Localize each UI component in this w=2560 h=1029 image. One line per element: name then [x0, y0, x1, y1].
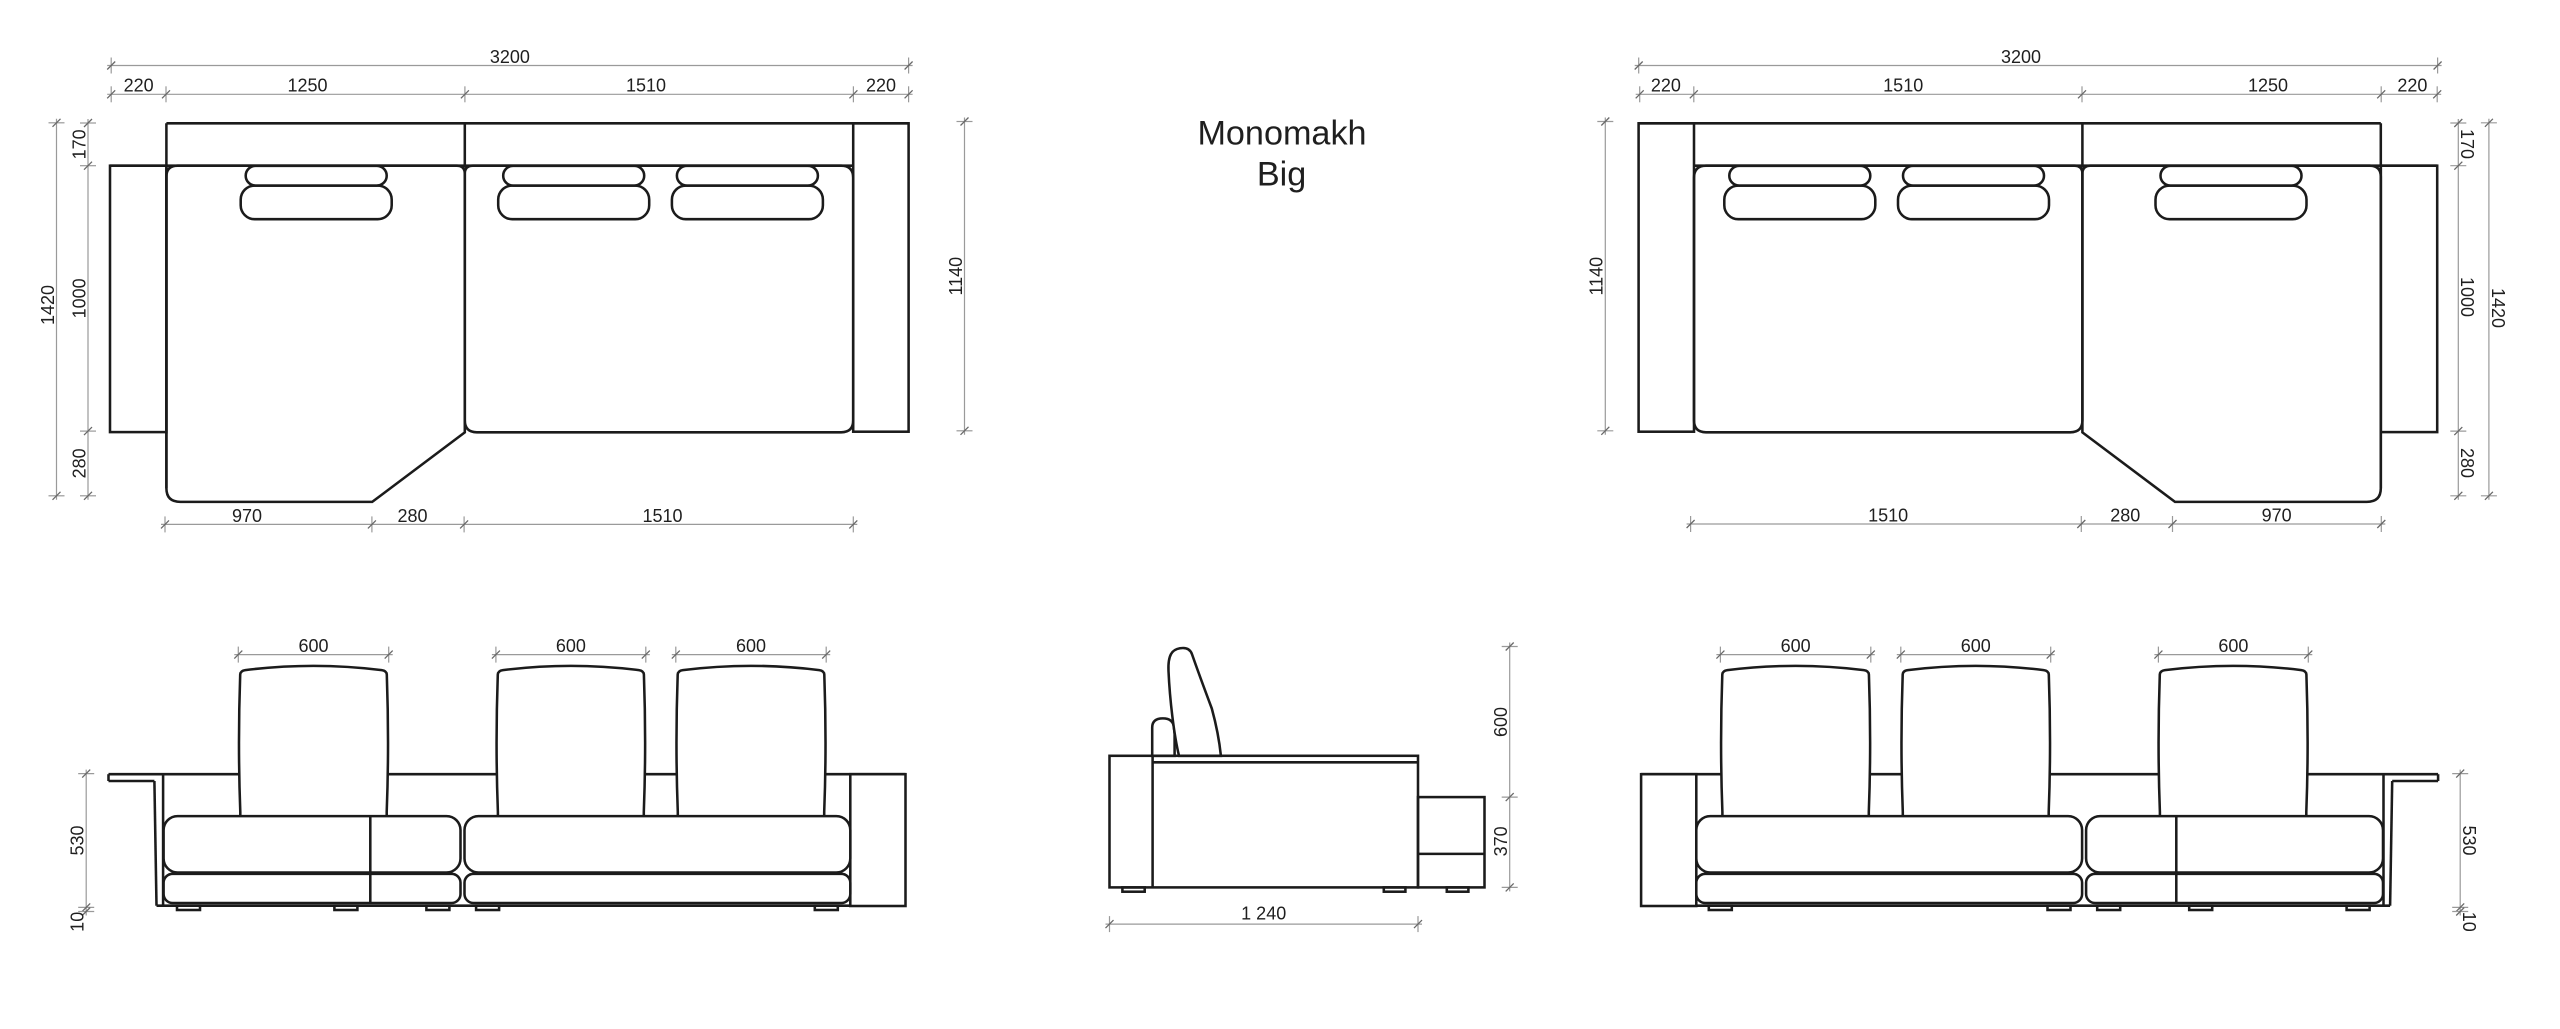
svg-text:600: 600: [2218, 636, 2248, 656]
svg-text:Monomakh: Monomakh: [1197, 114, 1366, 152]
svg-text:1420: 1420: [2488, 288, 2508, 328]
svg-text:970: 970: [232, 506, 262, 526]
svg-text:1420: 1420: [38, 285, 58, 325]
svg-text:1000: 1000: [2457, 277, 2477, 317]
svg-text:1 240: 1 240: [1241, 904, 1286, 924]
svg-text:600: 600: [1491, 707, 1511, 737]
svg-text:600: 600: [1781, 636, 1811, 656]
svg-text:3200: 3200: [2001, 47, 2041, 67]
svg-text:370: 370: [1491, 826, 1511, 856]
svg-text:1140: 1140: [1587, 257, 1607, 296]
svg-text:600: 600: [1961, 636, 1991, 656]
svg-text:170: 170: [2457, 129, 2477, 159]
svg-text:1510: 1510: [1868, 505, 1908, 525]
svg-text:600: 600: [298, 636, 328, 656]
svg-text:600: 600: [556, 636, 586, 656]
svg-text:600: 600: [736, 636, 766, 656]
svg-text:170: 170: [69, 129, 89, 159]
svg-text:1250: 1250: [287, 76, 327, 96]
svg-text:220: 220: [2397, 76, 2427, 96]
svg-text:1000: 1000: [69, 278, 89, 318]
svg-text:530: 530: [2459, 825, 2479, 855]
svg-text:220: 220: [866, 76, 896, 96]
svg-text:1250: 1250: [2248, 76, 2288, 96]
svg-text:220: 220: [124, 76, 154, 96]
svg-text:280: 280: [2110, 505, 2140, 525]
svg-text:220: 220: [1651, 76, 1681, 96]
svg-text:280: 280: [2457, 448, 2477, 478]
svg-text:Big: Big: [1257, 155, 1306, 193]
svg-text:530: 530: [68, 825, 88, 855]
svg-text:10: 10: [68, 912, 88, 932]
svg-text:10: 10: [2459, 912, 2479, 932]
svg-text:1510: 1510: [1883, 76, 1923, 96]
svg-text:1510: 1510: [642, 506, 682, 526]
svg-text:970: 970: [2262, 505, 2292, 525]
svg-text:1510: 1510: [626, 76, 666, 96]
svg-text:280: 280: [69, 448, 89, 478]
svg-text:280: 280: [397, 506, 427, 526]
svg-text:3200: 3200: [490, 47, 530, 67]
svg-text:1140: 1140: [946, 257, 966, 296]
